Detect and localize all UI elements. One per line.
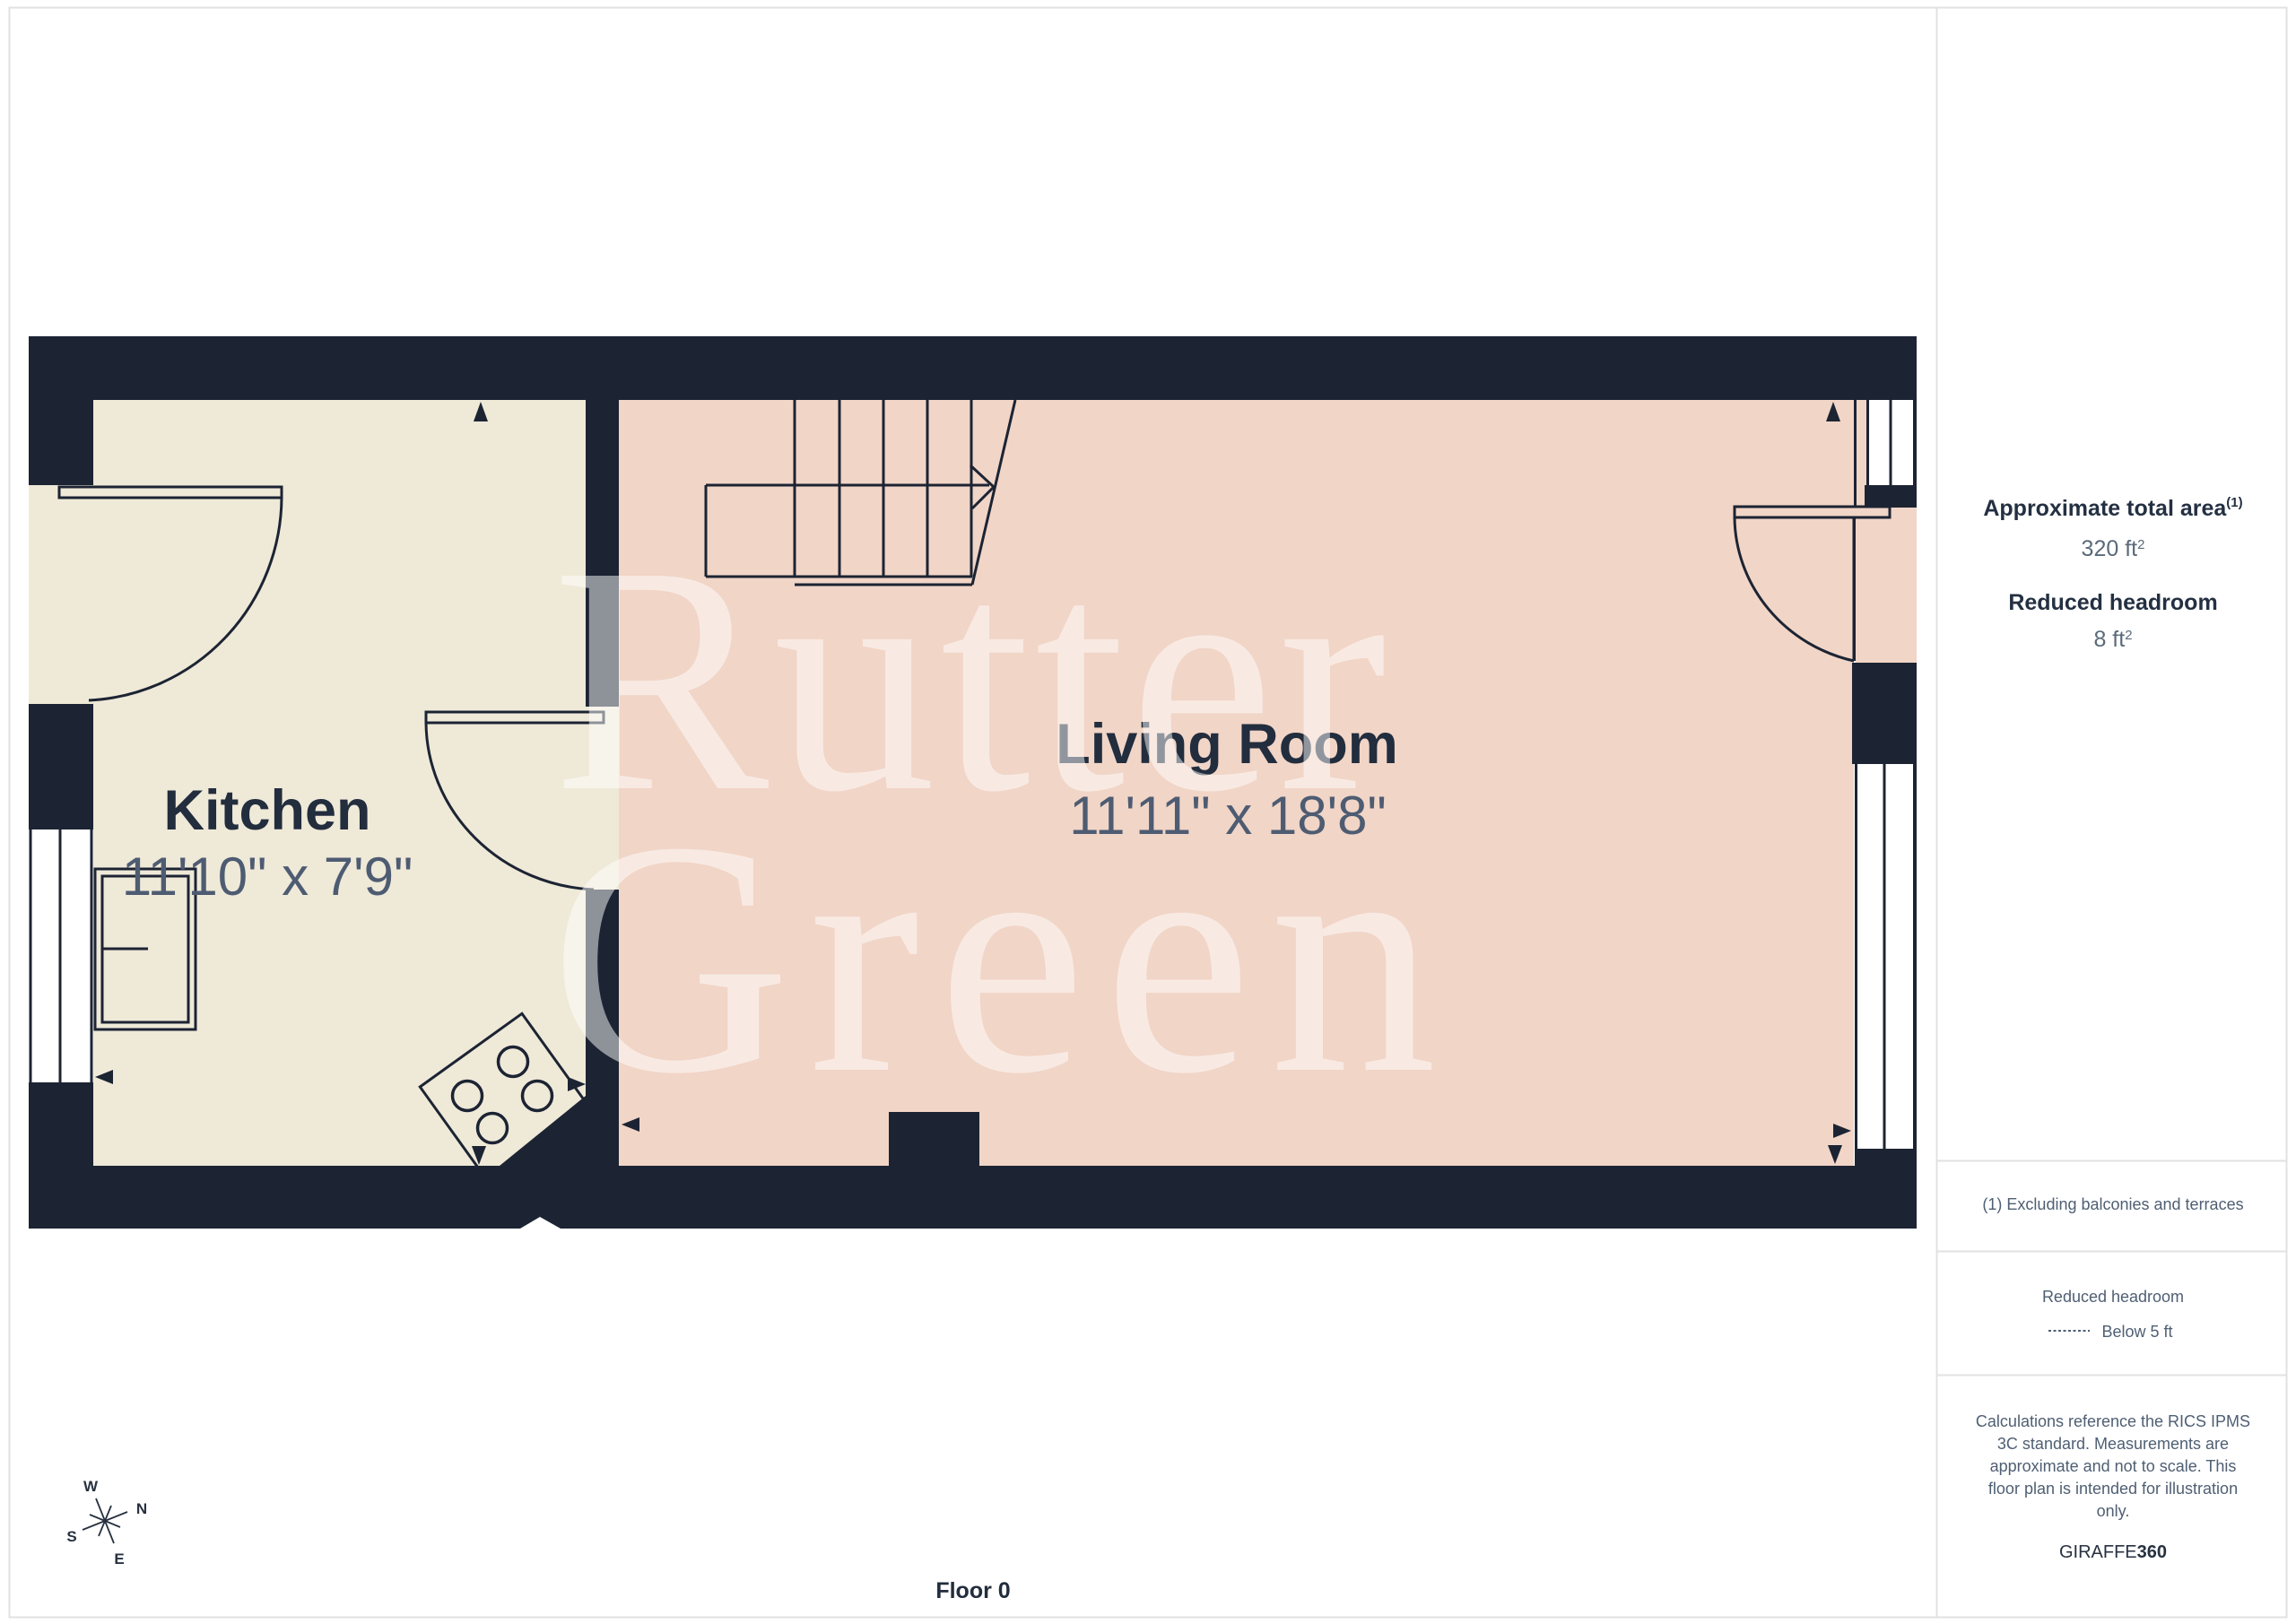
svg-text:Reduced headroom: Reduced headroom	[2008, 590, 2217, 615]
svg-text:floor plan is intended for ill: floor plan is intended for illustration	[1988, 1480, 2238, 1498]
svg-text:Below 5 ft: Below 5 ft	[2101, 1323, 2172, 1341]
svg-text:(1) Excluding balconies and te: (1) Excluding balconies and terraces	[1982, 1195, 2243, 1213]
svg-text:320 ft2: 320 ft2	[2082, 536, 2145, 561]
svg-text:GIRAFFE360: GIRAFFE360	[2059, 1542, 2167, 1562]
svg-text:Reduced headroom: Reduced headroom	[2042, 1288, 2184, 1306]
svg-text:Green: Green	[550, 774, 1455, 1142]
svg-text:Approximate total area(1): Approximate total area(1)	[1983, 495, 2242, 521]
svg-text:N: N	[136, 1500, 147, 1517]
svg-text:3C standard. Measurements are: 3C standard. Measurements are	[1997, 1435, 2229, 1453]
svg-text:only.: only.	[2097, 1502, 2130, 1520]
svg-text:Calculations reference the RIC: Calculations reference the RICS IPMS	[1976, 1412, 2250, 1430]
svg-text:11'10" x 7'9": 11'10" x 7'9"	[122, 847, 413, 907]
svg-text:Floor 0: Floor 0	[935, 1578, 1010, 1603]
svg-text:approximate and not to scale.: approximate and not to scale. This	[1990, 1457, 2237, 1475]
svg-text:Kitchen: Kitchen	[163, 779, 370, 842]
svg-text:W: W	[83, 1478, 99, 1495]
svg-text:S: S	[66, 1528, 76, 1545]
svg-text:E: E	[114, 1550, 124, 1568]
